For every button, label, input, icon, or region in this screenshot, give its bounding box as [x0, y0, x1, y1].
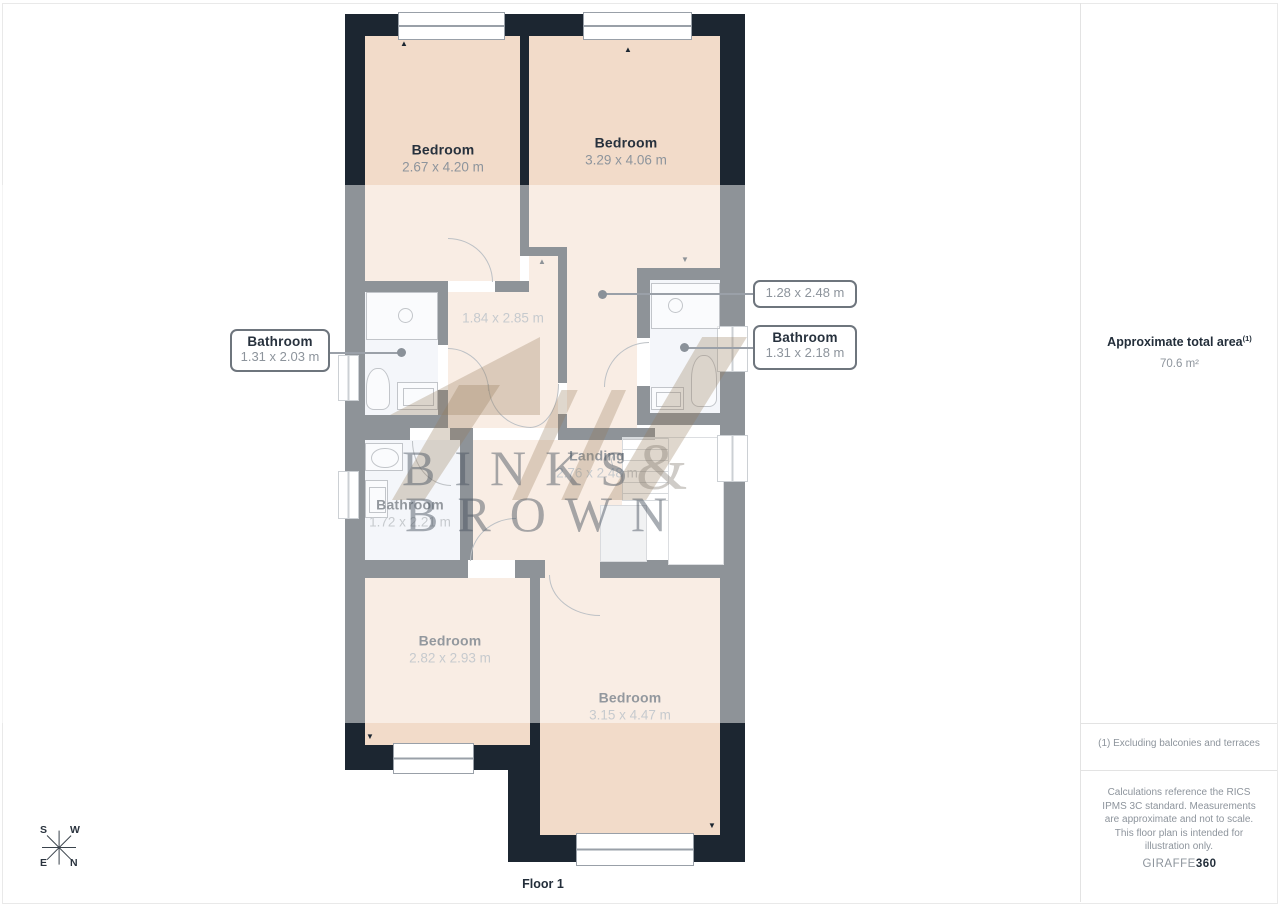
panel-divider-left	[1080, 3, 1081, 902]
callout-dot	[598, 290, 607, 299]
wall-hall-nook	[558, 247, 567, 383]
shower-right-drain-icon	[668, 298, 683, 313]
giraffe360-logo: GIRAFFE360	[1081, 858, 1278, 870]
sink-middle-basin-icon	[371, 448, 398, 468]
area-value: 70.6 m²	[1081, 358, 1278, 370]
marker-arrow-icon: ▲	[624, 46, 632, 54]
callout-bathroom-left: Bathroom 1.31 x 2.03 m	[230, 329, 330, 372]
area-title: Approximate total area(1)	[1081, 334, 1278, 349]
wall-bathmid-top-a	[345, 428, 410, 440]
marker-arrow-icon: ▼	[366, 733, 374, 741]
callout-dims: 1.28 x 2.48 m	[761, 285, 849, 300]
callout-dims: 1.31 x 2.03 m	[238, 349, 322, 364]
room-dims: 2.82 x 2.93 m	[409, 651, 491, 666]
area-title-text: Approximate total area	[1107, 335, 1242, 349]
compass-w: W	[70, 824, 80, 836]
panel-divider-2	[1080, 770, 1277, 771]
floor-title: Floor 1	[493, 877, 593, 891]
callout-name: Bathroom	[761, 330, 849, 345]
window-left-upper	[338, 355, 359, 401]
panel-footnote: (1) Excluding balconies and terraces	[1089, 737, 1269, 751]
window-bottom-right	[576, 833, 694, 866]
wall-bathleft-bottom	[345, 415, 448, 428]
label-bedroom-bottom-right: Bedroom 3.15 x 4.47 m	[589, 690, 671, 723]
window-top-right	[583, 12, 692, 40]
compass-s: S	[40, 824, 47, 836]
room-name: Bedroom	[589, 690, 671, 706]
room-name: Bedroom	[402, 142, 484, 158]
callout-dot	[680, 343, 689, 352]
marker-arrow-icon: ▲	[400, 40, 408, 48]
label-inner-hall: 1.84 x 2.85 m	[462, 309, 544, 326]
window-left-lower	[338, 471, 359, 519]
callout-wc-right: 1.28 x 2.48 m	[753, 280, 857, 308]
compass-e: E	[40, 857, 47, 869]
room-name: Bedroom	[585, 135, 667, 151]
compass-n: N	[70, 857, 78, 869]
window-bottom-left	[393, 743, 474, 774]
callout-dot	[397, 348, 406, 357]
shower-left-drain-icon	[398, 308, 413, 323]
wall-between-bottom-bedrooms	[530, 560, 540, 745]
watermark-line2: BROWN	[405, 489, 686, 539]
shower-right-icon	[651, 283, 720, 329]
room-dims: 3.29 x 4.06 m	[585, 153, 667, 168]
wall-bathright-left-a	[637, 268, 650, 338]
room-dims: 2.67 x 4.20 m	[402, 160, 484, 175]
wall-hall-top-a	[345, 281, 448, 292]
area-note-ref: (1)	[1243, 334, 1252, 343]
sink-middle-icon	[365, 443, 403, 471]
wall-bathright-left-b	[637, 386, 650, 413]
label-bedroom-top-right: Bedroom 3.29 x 4.06 m	[585, 135, 667, 168]
floorplan-page: ⟨ ▲ ▲ ▲ ▼ ▼ ▼ Bedroom 2.67 x 4.20 m Bedr…	[0, 0, 1280, 906]
toilet-left-icon	[366, 368, 390, 410]
callout-leader-line	[325, 352, 401, 354]
marker-arrow-icon: ▼	[681, 256, 689, 264]
window-right-lower	[717, 435, 748, 482]
label-bedroom-top-left: Bedroom 2.67 x 4.20 m	[402, 142, 484, 175]
wall-bathleft-right-a	[438, 292, 448, 345]
callout-leader-line	[684, 347, 753, 349]
panel-divider-1	[1080, 723, 1277, 724]
wall-between-top-bedrooms	[520, 36, 529, 250]
callout-bathroom-right: Bathroom 1.31 x 2.18 m	[753, 325, 857, 370]
window-top-left	[398, 12, 505, 40]
callout-name: Bathroom	[238, 334, 322, 349]
marker-arrow-icon: ▲	[538, 258, 546, 266]
callout-dims: 1.31 x 2.18 m	[761, 345, 849, 360]
label-bedroom-bottom-left: Bedroom 2.82 x 2.93 m	[409, 633, 491, 666]
panel-disclaimer: Calculations reference the RICS IPMS 3C …	[1098, 786, 1260, 854]
brand-suffix: 360	[1196, 858, 1217, 870]
brand-prefix: GIRAFFE	[1142, 858, 1195, 870]
room-dims: 1.84 x 2.85 m	[462, 311, 544, 326]
wall-hall-top-b	[495, 281, 529, 292]
room-dims: 3.15 x 4.47 m	[589, 708, 671, 723]
marker-arrow-icon: ▼	[708, 822, 716, 830]
wall-landing-bottom-a	[345, 560, 468, 578]
room-name: Bedroom	[409, 633, 491, 649]
callout-leader-line	[602, 293, 753, 295]
